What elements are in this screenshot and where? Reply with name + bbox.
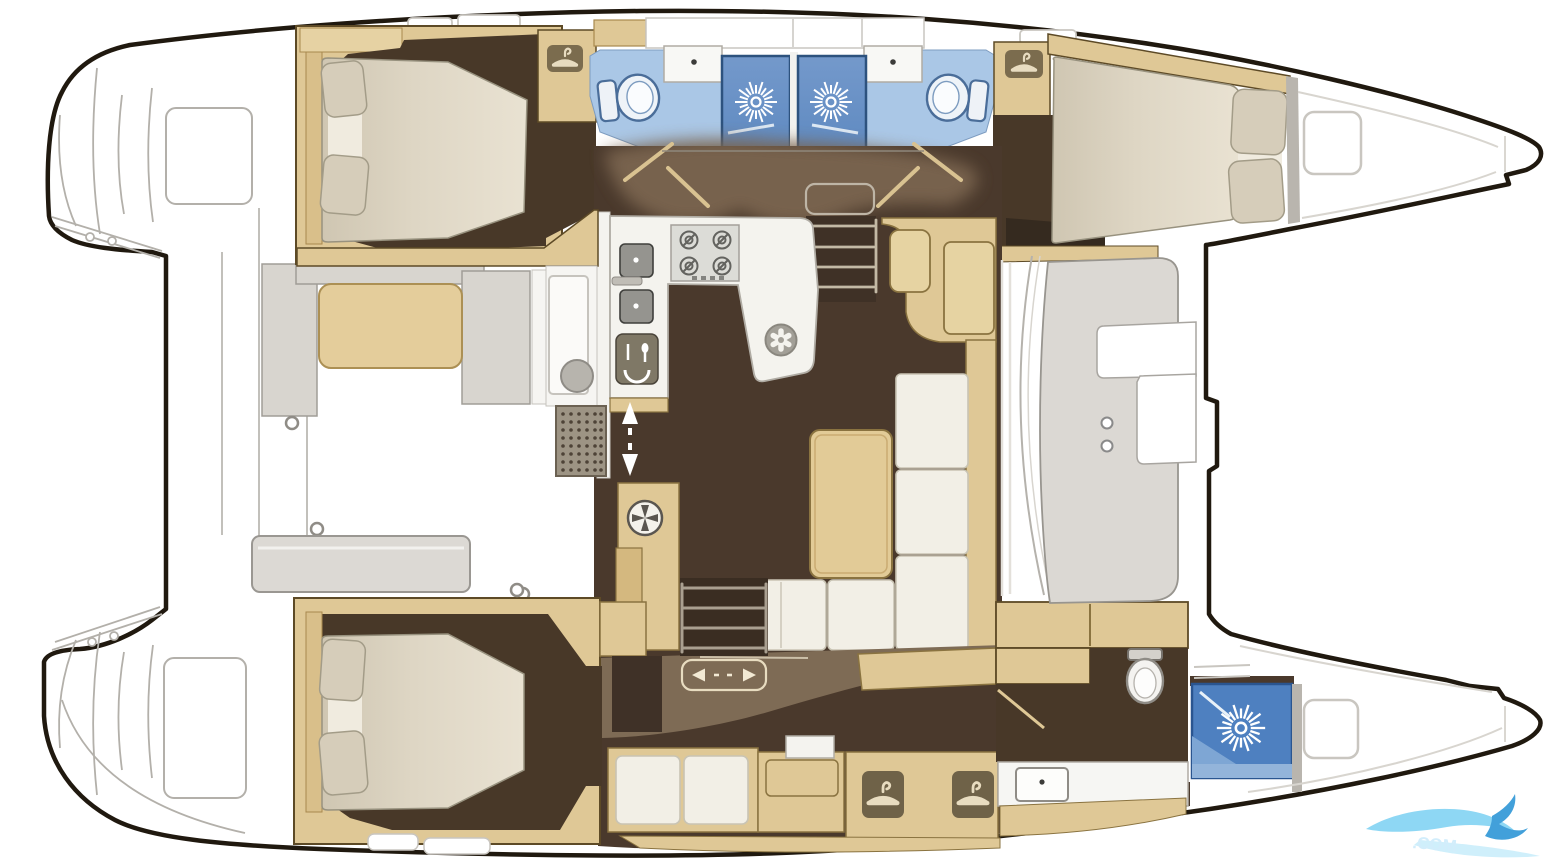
svg-text:.COM: .COM bbox=[1412, 833, 1458, 856]
